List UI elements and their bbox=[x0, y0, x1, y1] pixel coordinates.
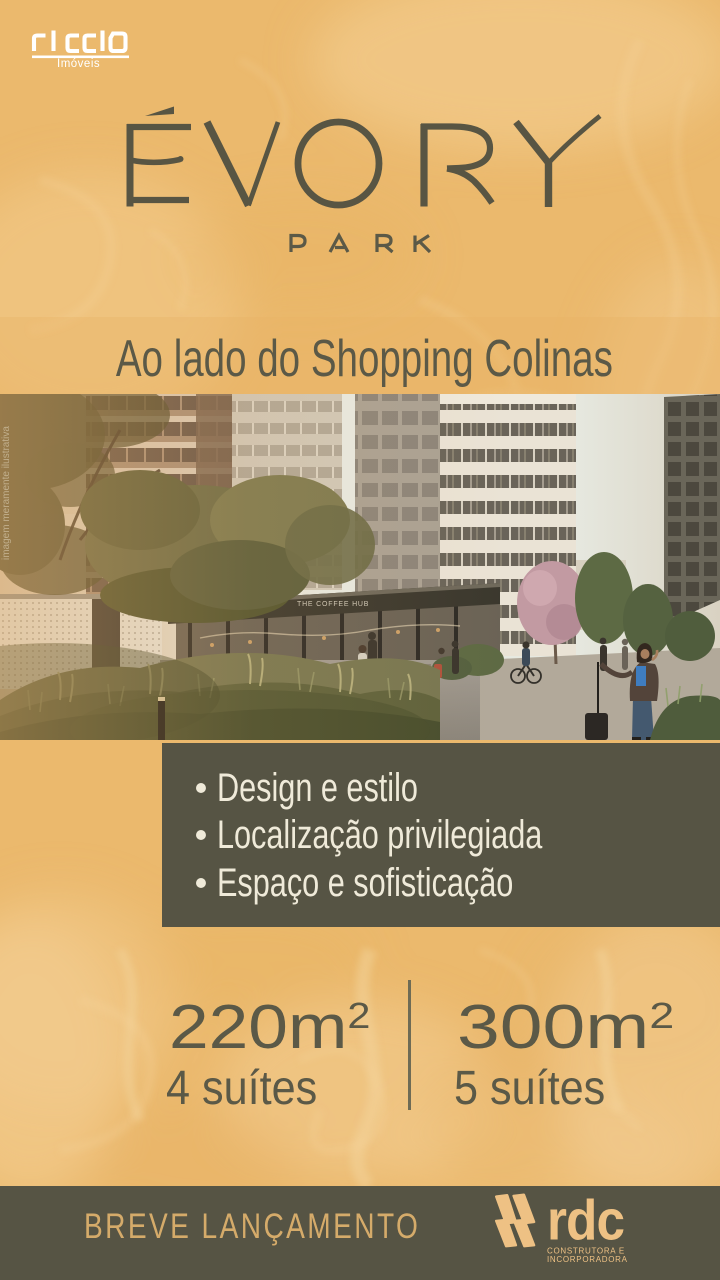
svg-text:rdc: rdc bbox=[547, 1191, 624, 1252]
svg-text:imagem meramente ilustrativa: imagem meramente ilustrativa bbox=[1, 426, 12, 560]
svg-text:INCORPORADORA: INCORPORADORA bbox=[547, 1255, 628, 1264]
